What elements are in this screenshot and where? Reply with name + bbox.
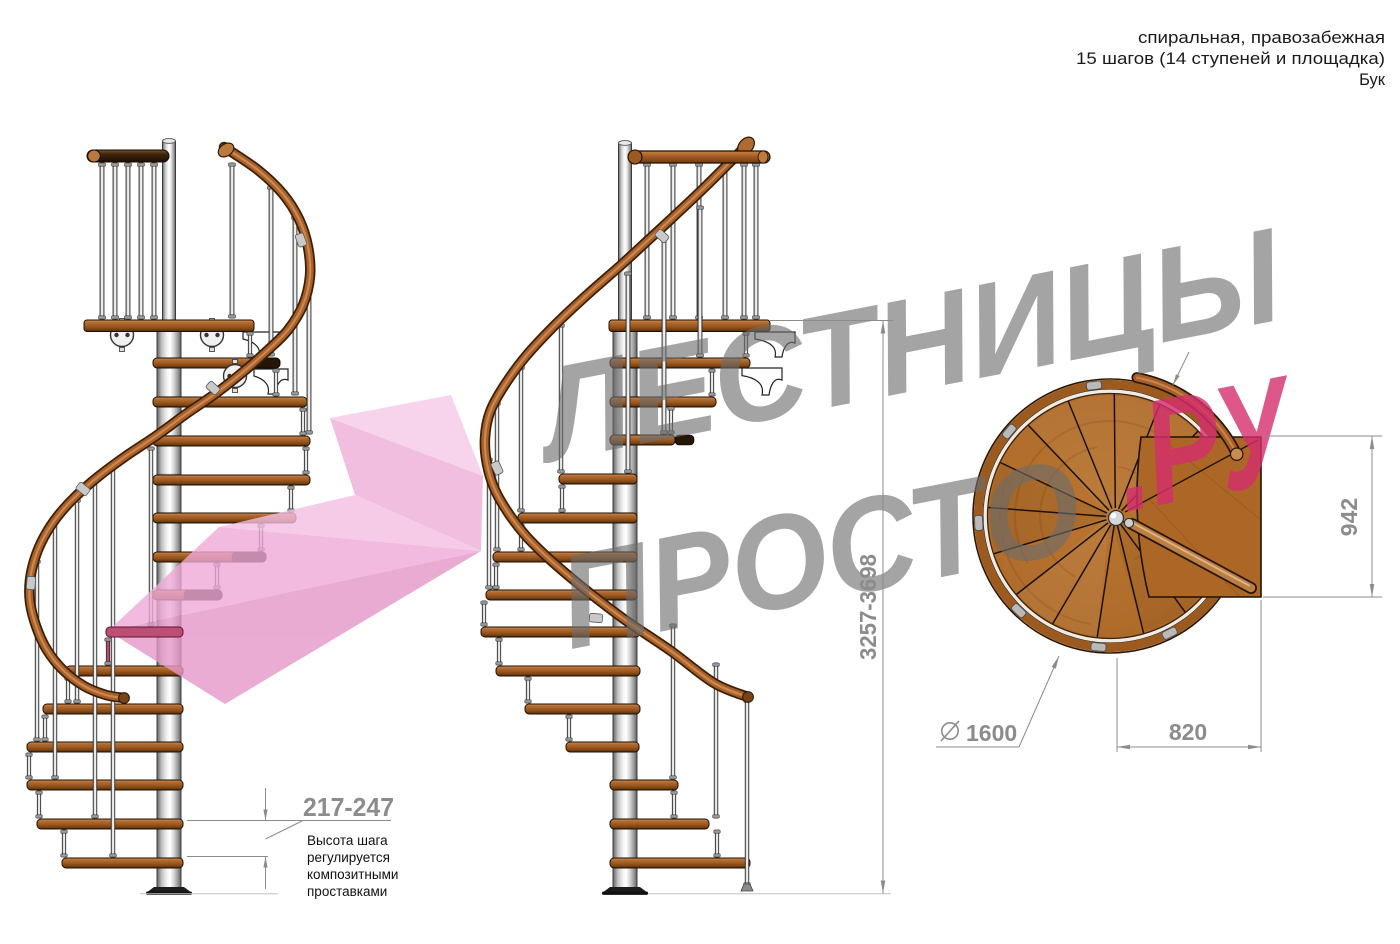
svg-text:3257-3698: 3257-3698 xyxy=(855,554,881,660)
svg-text:регулируется: регулируется xyxy=(307,850,390,865)
svg-text:Высота шага: Высота шага xyxy=(307,833,388,848)
svg-text:820: 820 xyxy=(1169,719,1207,745)
svg-text:спиральная, правозабежная: спиральная, правозабежная xyxy=(1138,29,1385,47)
svg-text:1600: 1600 xyxy=(966,720,1017,746)
svg-text:942: 942 xyxy=(1336,498,1362,536)
svg-text:15 шагов (14 ступеней и площад: 15 шагов (14 ступеней и площадка) xyxy=(1076,50,1385,68)
svg-text:композитными: композитными xyxy=(307,867,398,882)
svg-text:проставками: проставками xyxy=(307,884,387,899)
svg-text:217-247: 217-247 xyxy=(303,792,394,822)
svg-text:Бук: Бук xyxy=(1359,71,1386,89)
